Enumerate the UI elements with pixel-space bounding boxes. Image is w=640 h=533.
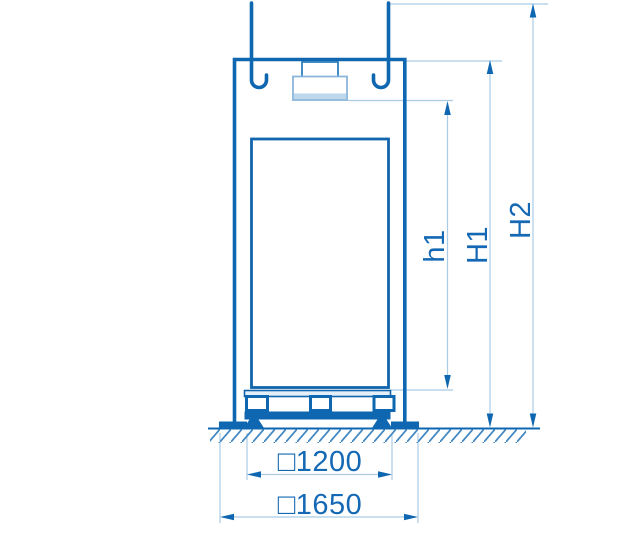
press-head-base-strip — [294, 94, 346, 100]
H1-arrow-up-icon — [487, 60, 494, 74]
left-cable-hook — [252, 3, 267, 88]
right-cable-hook — [374, 3, 389, 88]
h1-arrow-up-icon — [444, 101, 451, 115]
base-inner-width-label: □1200 — [278, 446, 363, 478]
h1-arrow-down-icon — [444, 375, 451, 389]
press-head-upper-block — [302, 62, 338, 77]
pallet-block-right — [374, 397, 394, 411]
ground-hatching — [210, 430, 526, 444]
H2-arrow-down-icon — [530, 414, 537, 428]
right-foot — [391, 422, 419, 429]
left-foot — [219, 422, 247, 429]
width1650-arrow-left-icon — [220, 514, 234, 521]
width1200-arrow-left-icon — [247, 471, 261, 478]
width1200-arrow-right-icon — [378, 471, 392, 478]
base-outer-width-label: □1650 — [278, 489, 363, 521]
pallet-bottom-bar — [245, 412, 391, 420]
h1-label: h1 — [419, 229, 451, 262]
baler-dimension-drawing: h1 H1 H2 □1200 □1650 — [0, 0, 640, 533]
H2-arrow-up-icon — [530, 4, 537, 18]
width1650-arrow-right-icon — [404, 514, 418, 521]
H1-label: H1 — [462, 226, 494, 264]
pallet-block-left — [247, 397, 268, 411]
pallet-block-middle — [311, 397, 331, 411]
technical-drawing-canvas: h1 H1 H2 □1200 □1650 — [0, 0, 640, 533]
H1-arrow-down-icon — [487, 414, 494, 428]
bale-chamber — [252, 139, 389, 388]
H2-label: H2 — [505, 201, 537, 239]
